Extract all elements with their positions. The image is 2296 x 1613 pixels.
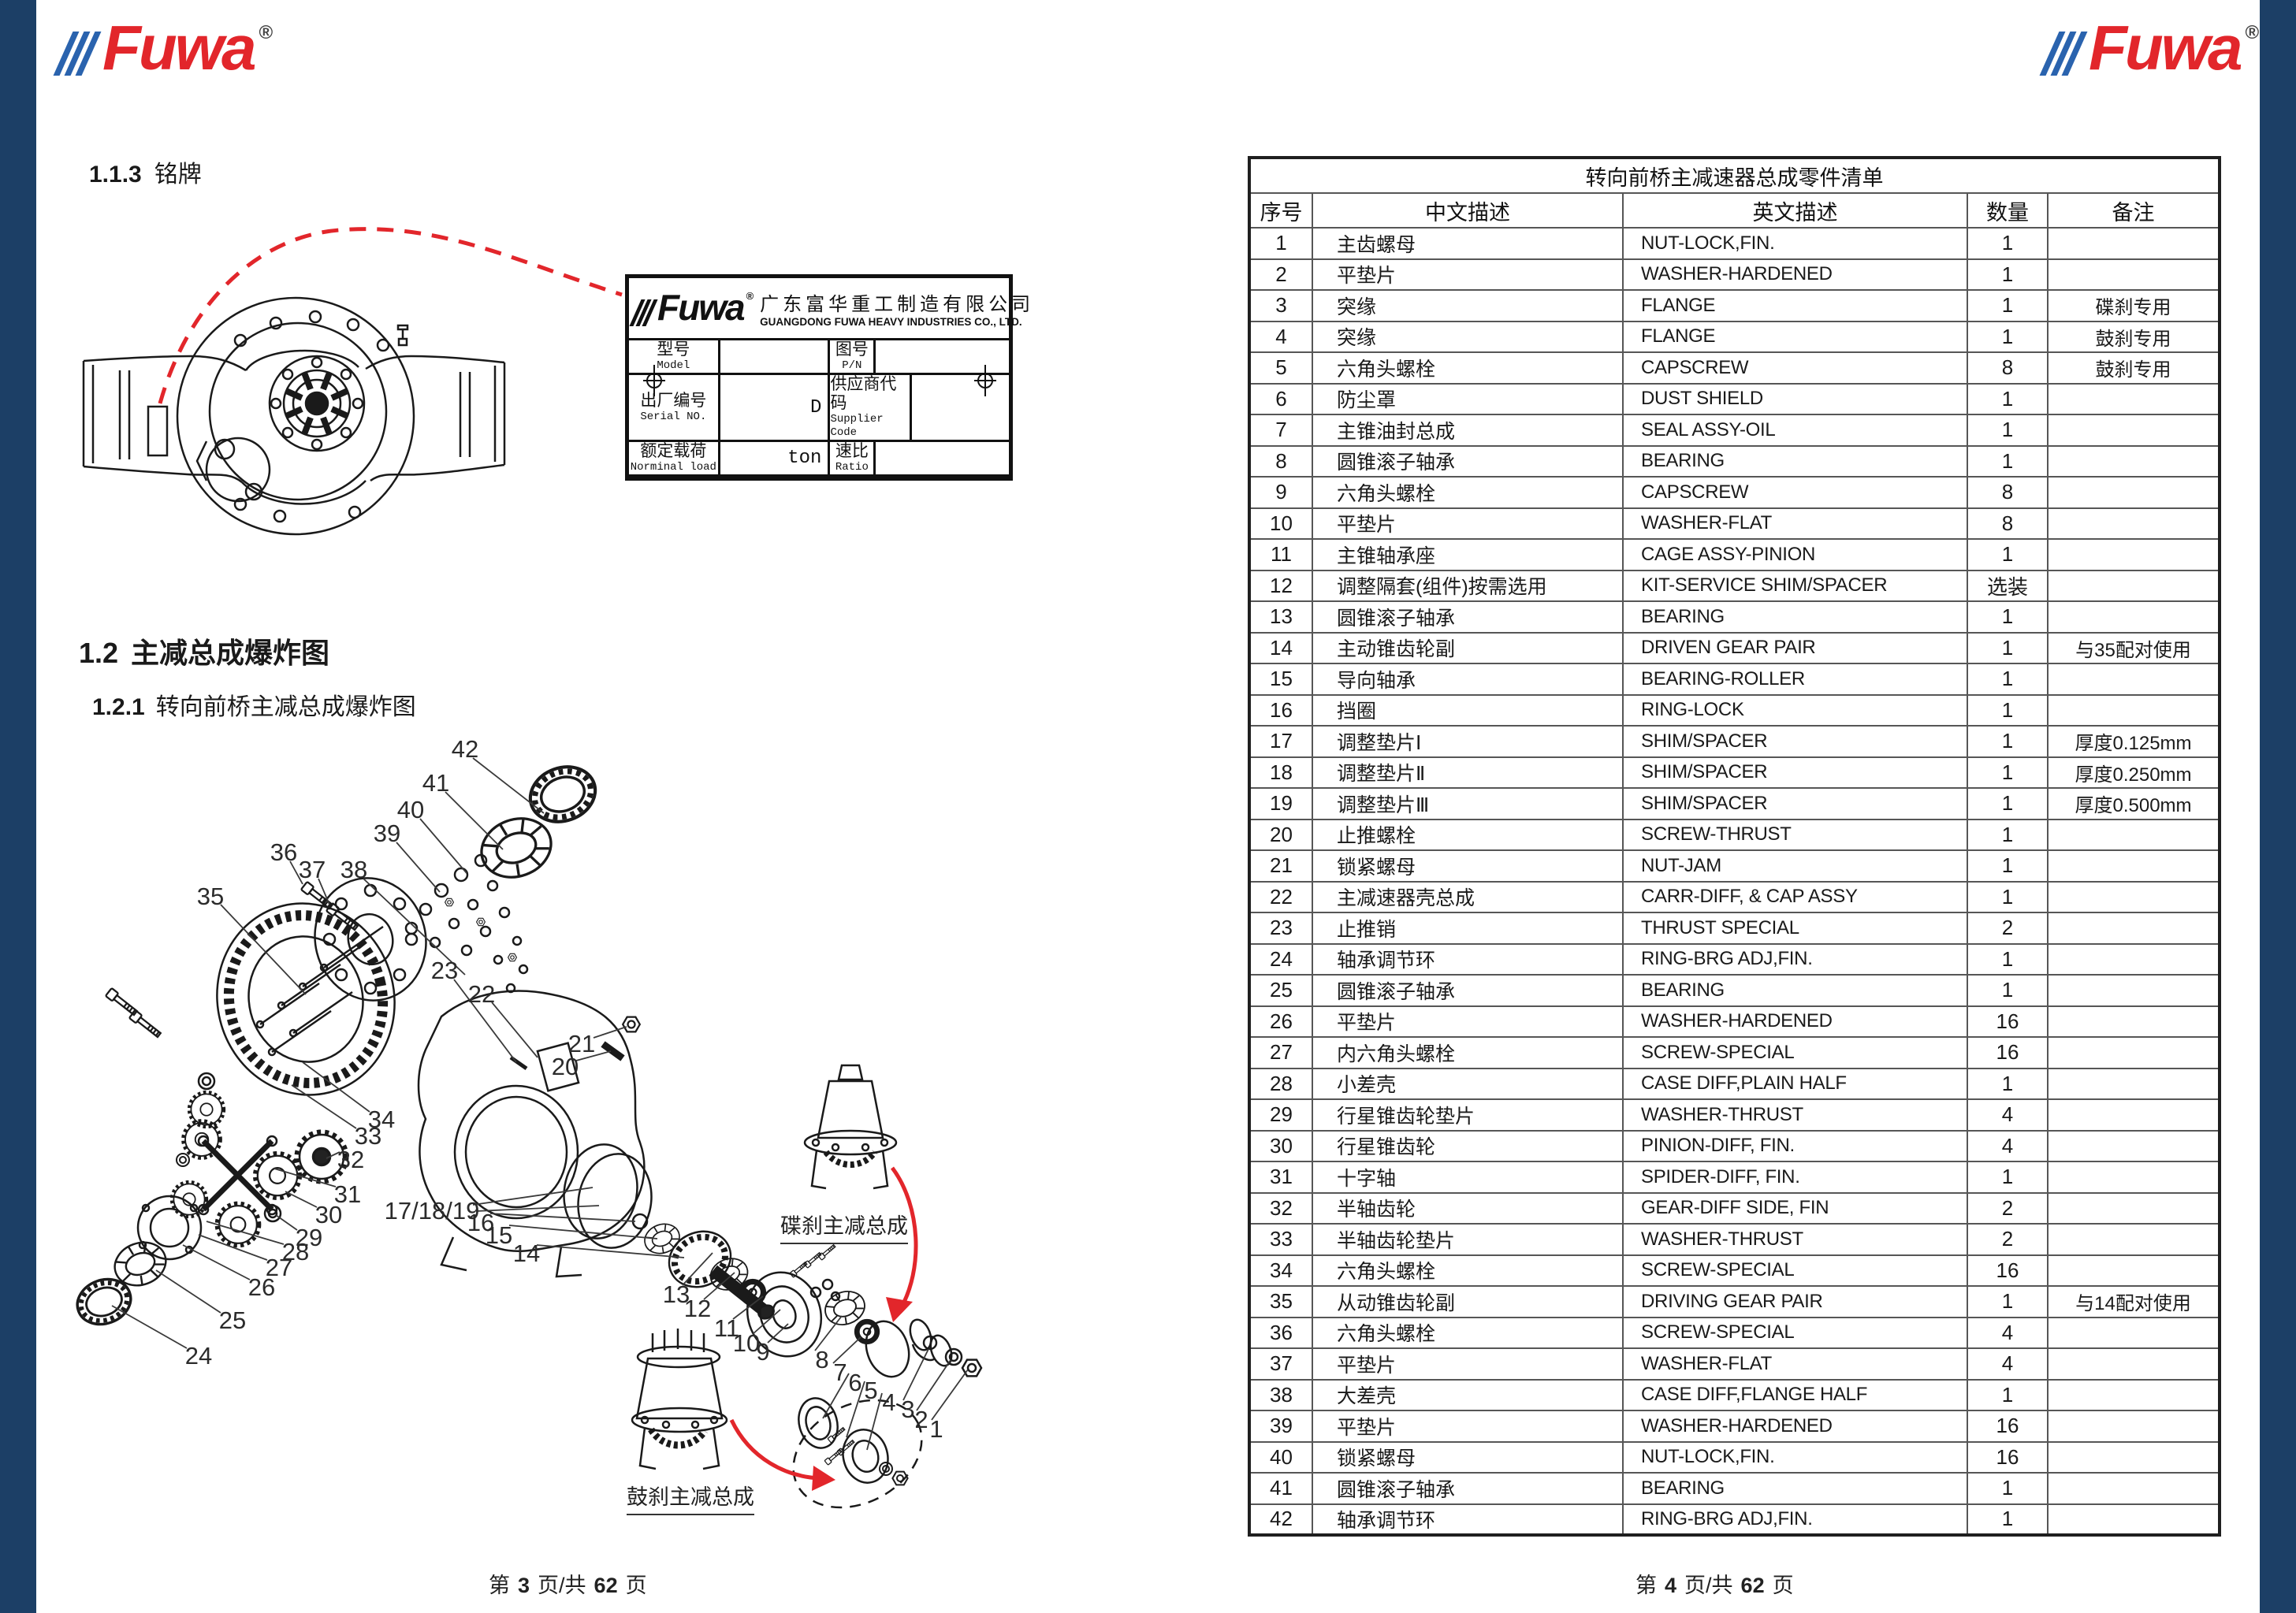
cell-remark — [2048, 1069, 2220, 1100]
table-row: 7主锥油封总成SEAL ASSY-OIL1 — [1249, 414, 2220, 446]
cell-no: 15 — [1249, 663, 1312, 695]
callout-disc-brake-assy: 碟刹主减总成 — [780, 1209, 908, 1244]
cell-desc-en: FLANGE — [1623, 321, 1967, 353]
table-row: 30行星锥齿轮PINION-DIFF, FIN.4 — [1249, 1131, 2220, 1162]
part-label: 9 — [756, 1338, 769, 1366]
cell-remark — [2048, 446, 2220, 478]
page-footer-right: 第4页/共62页 — [1635, 1568, 1794, 1599]
cell-desc-cn: 调整隔套(组件)按需选用 — [1312, 570, 1623, 602]
cell-qty: 1 — [1967, 726, 2048, 757]
cell-desc-en: CASE DIFF,FLANGE HALF — [1623, 1380, 1967, 1411]
plate-value-ratio — [876, 442, 1009, 474]
cell-qty: 1 — [1967, 259, 2048, 291]
cell-qty: 1 — [1967, 1473, 2048, 1504]
cell-qty: 1 — [1967, 414, 2048, 446]
cell-remark: 厚度0.500mm — [2048, 788, 2220, 820]
cell-desc-cn: 从动锥齿轮副 — [1312, 1286, 1623, 1318]
plate-label-ratio: 速比 Ratio — [830, 442, 876, 474]
table-row: 24轴承调节环RING-BRG ADJ,FIN.1 — [1249, 944, 2220, 976]
cell-qty: 8 — [1967, 352, 2048, 384]
cell-qty: 1 — [1967, 446, 2048, 478]
cell-no: 22 — [1249, 882, 1312, 913]
table-row: 13圆锥滚子轴承BEARING1 — [1249, 601, 2220, 633]
cell-remark — [2048, 601, 2220, 633]
breather-fitting — [398, 325, 407, 345]
part-label: 7 — [833, 1358, 847, 1386]
cell-no: 25 — [1249, 975, 1312, 1006]
cell-remark — [2048, 1473, 2220, 1504]
cell-remark — [2048, 1255, 2220, 1287]
table-row: 5六角头螺栓CAPSCREW8鼓刹专用 — [1249, 352, 2220, 384]
page-number: 3 — [518, 1574, 530, 1597]
cell-no: 12 — [1249, 570, 1312, 602]
section-title: 主减总成爆炸图 — [131, 637, 329, 669]
cell-desc-en: WASHER-HARDENED — [1623, 259, 1967, 291]
cell-no: 36 — [1249, 1318, 1312, 1349]
cell-qty: 2 — [1967, 912, 2048, 944]
cell-desc-cn: 调整垫片Ⅱ — [1312, 757, 1623, 789]
table-title: 转向前桥主减速器总成零件清单 — [1249, 158, 2220, 193]
cell-no: 38 — [1249, 1380, 1312, 1411]
cell-remark: 厚度0.125mm — [2048, 726, 2220, 757]
cell-qty: 1 — [1967, 290, 2048, 321]
part-label: 41 — [422, 769, 449, 797]
nameplate-location-marker — [148, 407, 167, 455]
cell-desc-cn: 突缘 — [1312, 290, 1623, 321]
part-label: 35 — [197, 883, 224, 910]
cell-remark — [2048, 912, 2220, 944]
mounting-hole-icon — [968, 363, 1003, 398]
cell-remark — [2048, 1037, 2220, 1069]
cell-desc-cn: 平垫片 — [1312, 259, 1623, 291]
table-row: 27内六角头螺栓SCREW-SPECIAL16 — [1249, 1037, 2220, 1069]
table-row: 6防尘罩DUST SHIELD1 — [1249, 384, 2220, 415]
cell-qty: 1 — [1967, 788, 2048, 820]
part-label: 20 — [552, 1053, 579, 1080]
cell-desc-cn: 大差壳 — [1312, 1380, 1623, 1411]
cell-desc-en: WASHER-HARDENED — [1623, 1410, 1967, 1442]
axle-hub — [270, 356, 364, 451]
nameplate-leader-dashed — [160, 229, 622, 403]
cell-qty: 1 — [1967, 228, 2048, 259]
cell-remark — [2048, 414, 2220, 446]
yoke-washer-nut — [906, 1317, 981, 1376]
cell-desc-cn: 圆锥滚子轴承 — [1312, 975, 1623, 1006]
table-row: 14主动锥齿轮副DRIVEN GEAR PAIR1与35配对使用 — [1249, 633, 2220, 664]
part-label: 39 — [374, 820, 400, 847]
cell-desc-cn: 主齿螺母 — [1312, 228, 1623, 259]
table-row: 2平垫片WASHER-HARDENED1 — [1249, 259, 2220, 291]
part-label: 17/18/19 — [385, 1197, 480, 1225]
jam-nut-21 — [623, 1017, 640, 1032]
cell-no: 26 — [1249, 1006, 1312, 1038]
cell-desc-en: WASHER-HARDENED — [1623, 1006, 1967, 1038]
cell-desc-cn: 圆锥滚子轴承 — [1312, 601, 1623, 633]
cell-no: 34 — [1249, 1255, 1312, 1287]
fuwa-logo-top-right: Fuwa ® — [2049, 20, 2259, 76]
page-footer-left: 第3页/共62页 — [489, 1568, 647, 1599]
table-row: 26平垫片WASHER-HARDENED16 — [1249, 1006, 2220, 1038]
cell-desc-cn: 突缘 — [1312, 321, 1623, 353]
cell-no: 2 — [1249, 259, 1312, 291]
cell-no: 39 — [1249, 1410, 1312, 1442]
table-row: 8圆锥滚子轴承BEARING1 — [1249, 446, 2220, 478]
cell-desc-cn: 六角头螺栓 — [1312, 352, 1623, 384]
cell-remark — [2048, 1504, 2220, 1536]
cell-remark: 厚度0.250mm — [2048, 757, 2220, 789]
table-row: 33半轴齿轮垫片WASHER-THRUST2 — [1249, 1224, 2220, 1255]
cell-remark — [2048, 1193, 2220, 1225]
cell-qty: 1 — [1967, 1380, 2048, 1411]
cell-remark — [2048, 1131, 2220, 1162]
cell-desc-en: RING-LOCK — [1623, 695, 1967, 727]
cell-qty: 1 — [1967, 633, 2048, 664]
fuwa-wordmark: Fuwa — [102, 20, 254, 76]
cell-desc-cn: 内六角头螺栓 — [1312, 1037, 1623, 1069]
cell-no: 13 — [1249, 601, 1312, 633]
cell-desc-en: BEARING — [1623, 975, 1967, 1006]
cell-remark — [2048, 663, 2220, 695]
registered-mark-icon: ® — [746, 290, 754, 302]
plate-row-serial: 出厂编号 Serial NO. D 供应商代码 Supplier Code — [629, 375, 1009, 442]
diagram-line-art — [71, 758, 981, 1529]
cell-remark — [2048, 1410, 2220, 1442]
part-label: 1 — [929, 1415, 943, 1443]
cell-desc-en: DRIVING GEAR PAIR — [1623, 1286, 1967, 1318]
cell-desc-cn: 锁紧螺母 — [1312, 850, 1623, 882]
nameplate-header-band: Fuwa ® 广东富华重工制造有限公司 GUANGDONG FUWA HEAVY… — [629, 278, 1009, 340]
cell-remark — [2048, 1161, 2220, 1193]
cell-remark — [2048, 944, 2220, 976]
table-row: 28小差壳CASE DIFF,PLAIN HALF1 — [1249, 1069, 2220, 1100]
table-row: 40锁紧螺母NUT-LOCK,FIN.16 — [1249, 1442, 2220, 1474]
cell-desc-cn: 十字轴 — [1312, 1161, 1623, 1193]
table-row: 20止推螺栓SCREW-THRUST1 — [1249, 820, 2220, 851]
cell-desc-cn: 六角头螺栓 — [1312, 1255, 1623, 1287]
cell-desc-en: KIT-SERVICE SHIM/SPACER — [1623, 570, 1967, 602]
cell-qty: 1 — [1967, 321, 2048, 353]
part-label: 14 — [513, 1239, 540, 1267]
page-total: 62 — [594, 1574, 618, 1597]
table-row: 19调整垫片ⅢSHIM/SPACER1厚度0.500mm — [1249, 788, 2220, 820]
carrier-housing — [419, 991, 644, 1277]
table-row: 39平垫片WASHER-HARDENED16 — [1249, 1410, 2220, 1442]
cell-remark — [2048, 1224, 2220, 1255]
cell-no: 28 — [1249, 1069, 1312, 1100]
cell-remark — [2048, 570, 2220, 602]
cell-remark: 与14配对使用 — [2048, 1286, 2220, 1318]
cell-desc-cn: 防尘罩 — [1312, 384, 1623, 415]
cell-desc-en: THRUST SPECIAL — [1623, 912, 1967, 944]
cell-no: 5 — [1249, 352, 1312, 384]
part-label: 37 — [299, 856, 326, 883]
cell-desc-en: SHIM/SPACER — [1623, 726, 1967, 757]
header-remark: 备注 — [2048, 193, 2220, 228]
nameplate-fuwa-logo: Fuwa ® — [635, 290, 754, 326]
table-row: 10平垫片WASHER-FLAT8 — [1249, 508, 2220, 540]
cell-remark — [2048, 384, 2220, 415]
cell-desc-en: CARR-DIFF, & CAP ASSY — [1623, 882, 1967, 913]
cell-qty: 1 — [1967, 663, 2048, 695]
left-navy-bar — [0, 0, 36, 1613]
page-total: 62 — [1741, 1574, 1765, 1597]
cell-remark — [2048, 850, 2220, 882]
part-label: 12 — [684, 1295, 711, 1322]
table-row: 16挡圈RING-LOCK1 — [1249, 695, 2220, 727]
part-label: 15 — [486, 1221, 512, 1249]
cell-qty: 1 — [1967, 850, 2048, 882]
cell-desc-cn: 主锥轴承座 — [1312, 539, 1623, 570]
cell-remark — [2048, 477, 2220, 508]
cell-remark — [2048, 259, 2220, 291]
table-row: 38大差壳CASE DIFF,FLANGE HALF1 — [1249, 1380, 2220, 1411]
cell-no: 41 — [1249, 1473, 1312, 1504]
cell-desc-en: CAPSCREW — [1623, 352, 1967, 384]
cell-desc-en: WASHER-FLAT — [1623, 508, 1967, 540]
cell-desc-en: WASHER-FLAT — [1623, 1348, 1967, 1380]
cell-desc-cn: 止推螺栓 — [1312, 820, 1623, 851]
plate-value-serial: D — [720, 375, 831, 440]
cell-desc-en: RING-BRG ADJ,FIN. — [1623, 1504, 1967, 1536]
cell-no: 42 — [1249, 1504, 1312, 1536]
cell-no: 6 — [1249, 384, 1312, 415]
cell-qty: 4 — [1967, 1099, 2048, 1131]
diff-case-group — [138, 1182, 207, 1259]
cell-desc-en: DUST SHIELD — [1623, 384, 1967, 415]
cell-qty: 1 — [1967, 601, 2048, 633]
cell-qty: 16 — [1967, 1006, 2048, 1038]
cell-desc-en: CASE DIFF,PLAIN HALF — [1623, 1069, 1967, 1100]
cell-desc-en: NUT-LOCK,FIN. — [1623, 1442, 1967, 1474]
cell-desc-cn: 调整垫片Ⅲ — [1312, 788, 1623, 820]
plate-label-load: 额定载荷 Norminal load — [629, 442, 720, 474]
fuwa-wordmark: Fuwa — [657, 290, 744, 325]
table-row: 18调整垫片ⅡSHIM/SPACER1厚度0.250mm — [1249, 757, 2220, 789]
cell-desc-cn: 圆锥滚子轴承 — [1312, 1473, 1623, 1504]
drum-assy-inset — [632, 1329, 727, 1469]
cell-no: 31 — [1249, 1161, 1312, 1193]
cell-qty: 1 — [1967, 1161, 2048, 1193]
company-name-cn: 广东富华重工制造有限公司 — [760, 288, 1034, 316]
cell-desc-en: GEAR-DIFF SIDE, FIN — [1623, 1193, 1967, 1225]
cell-no: 40 — [1249, 1442, 1312, 1474]
plate-label-pn: 图号 P/N — [830, 340, 876, 373]
cell-remark — [2048, 1380, 2220, 1411]
cell-desc-en: WASHER-THRUST — [1623, 1099, 1967, 1131]
cell-qty: 1 — [1967, 1504, 2048, 1536]
plate-value-model — [720, 340, 831, 373]
cell-remark: 鼓刹专用 — [2048, 352, 2220, 384]
table-row: 34六角头螺栓SCREW-SPECIAL16 — [1249, 1255, 2220, 1287]
cell-desc-en: BEARING — [1623, 601, 1967, 633]
cell-desc-cn: 调整垫片Ⅰ — [1312, 726, 1623, 757]
table-row: 12调整隔套(组件)按需选用KIT-SERVICE SHIM/SPACER选装 — [1249, 570, 2220, 602]
plate-row-model: 型号 Model 图号 P/N — [629, 340, 1009, 375]
header-qty: 数量 — [1967, 193, 2048, 228]
cell-no: 21 — [1249, 850, 1312, 882]
section-number: 1.1.3 — [89, 162, 142, 188]
cell-desc-en: WASHER-THRUST — [1623, 1224, 1967, 1255]
cell-desc-cn: 挡圈 — [1312, 695, 1623, 727]
section-title: 铭牌 — [154, 162, 202, 188]
cell-qty: 1 — [1967, 384, 2048, 415]
fuwa-wordmark: Fuwa — [2089, 20, 2240, 76]
cell-qty: 16 — [1967, 1255, 2048, 1287]
cell-qty: 4 — [1967, 1348, 2048, 1380]
table-row: 31十字轴SPIDER-DIFF, FIN.1 — [1249, 1161, 2220, 1193]
cell-qty: 1 — [1967, 539, 2048, 570]
cell-desc-cn: 行星锥齿轮 — [1312, 1131, 1623, 1162]
plate-label-supplier-code: 供应商代码 Supplier Code — [830, 375, 912, 440]
part-label: 3 — [901, 1396, 914, 1423]
cell-qty: 1 — [1967, 975, 2048, 1006]
header-desc-en: 英文描述 — [1623, 193, 1967, 228]
axle-housing — [84, 298, 504, 534]
cell-qty: 2 — [1967, 1224, 2048, 1255]
cell-desc-cn: 六角头螺栓 — [1312, 1318, 1623, 1349]
cell-remark — [2048, 1006, 2220, 1038]
cell-desc-cn: 主减速器壳总成 — [1312, 882, 1623, 913]
header-desc-cn: 中文描述 — [1312, 193, 1623, 228]
cell-remark: 鼓刹专用 — [2048, 321, 2220, 353]
table-row: 4突缘FLANGE1鼓刹专用 — [1249, 321, 2220, 353]
part-label: 26 — [248, 1273, 275, 1301]
cell-qty: 1 — [1967, 695, 2048, 727]
part-label: 24 — [185, 1342, 212, 1370]
cell-desc-cn: 六角头螺栓 — [1312, 477, 1623, 508]
table-row: 11主锥轴承座CAGE ASSY-PINION1 — [1249, 539, 2220, 570]
cell-no: 1 — [1249, 228, 1312, 259]
section-heading-1-2: 1.2主减总成爆炸图 — [79, 630, 329, 671]
cell-remark: 碟刹专用 — [2048, 290, 2220, 321]
cell-desc-cn: 平垫片 — [1312, 1006, 1623, 1038]
section-number: 1.2 — [79, 637, 118, 669]
table-row: 29行星锥齿轮垫片WASHER-THRUST4 — [1249, 1099, 2220, 1131]
disc-assy-inset — [805, 1065, 896, 1188]
cell-desc-cn: 半轴齿轮垫片 — [1312, 1224, 1623, 1255]
cell-qty: 1 — [1967, 1069, 2048, 1100]
cell-remark — [2048, 508, 2220, 540]
table-row: 35从动锥齿轮副DRIVING GEAR PAIR1与14配对使用 — [1249, 1286, 2220, 1318]
cell-desc-en: SHIM/SPACER — [1623, 788, 1967, 820]
part-label: 6 — [848, 1369, 861, 1396]
adjust-ring-24 — [71, 1272, 137, 1331]
fuwa-stripes-icon — [2049, 32, 2082, 76]
table-row: 15导向轴承BEARING-ROLLER1 — [1249, 663, 2220, 695]
cell-no: 11 — [1249, 539, 1312, 570]
cell-desc-en: NUT-JAM — [1623, 850, 1967, 882]
cell-desc-cn: 主动锥齿轮副 — [1312, 633, 1623, 664]
cell-desc-en: CAGE ASSY-PINION — [1623, 539, 1967, 570]
cell-qty: 4 — [1967, 1318, 2048, 1349]
nameplate: Fuwa ® 广东富华重工制造有限公司 GUANGDONG FUWA HEAVY… — [625, 274, 1013, 481]
cell-desc-en: DRIVEN GEAR PAIR — [1623, 633, 1967, 664]
header-no: 序号 — [1249, 193, 1312, 228]
cell-remark — [2048, 1348, 2220, 1380]
table-header-row: 序号 中文描述 英文描述 数量 备注 — [1249, 193, 2220, 228]
cell-remark — [2048, 1099, 2220, 1131]
cell-no: 14 — [1249, 633, 1312, 664]
plate-row-load: 额定载荷 Norminal load ton 速比 Ratio — [629, 442, 1009, 477]
cell-qty: 1 — [1967, 757, 2048, 789]
cell-desc-en: BEARING — [1623, 446, 1967, 478]
page-number: 4 — [1665, 1574, 1676, 1597]
part-label: 23 — [431, 957, 458, 984]
cell-no: 3 — [1249, 290, 1312, 321]
cell-desc-en: FLANGE — [1623, 290, 1967, 321]
part-label: 22 — [468, 980, 495, 1008]
section-heading-1-1-3: 1.1.3铭牌 — [89, 154, 202, 189]
cell-desc-en: SCREW-SPECIAL — [1623, 1037, 1967, 1069]
cell-qty: 8 — [1967, 508, 2048, 540]
cell-no: 37 — [1249, 1348, 1312, 1380]
cell-no: 7 — [1249, 414, 1312, 446]
callout-drum-brake-assy: 鼓刹主减总成 — [627, 1480, 754, 1515]
cell-remark — [2048, 1442, 2220, 1474]
cell-desc-cn: 锁紧螺母 — [1312, 1442, 1623, 1474]
cell-desc-cn: 平垫片 — [1312, 508, 1623, 540]
table-row: 36六角头螺栓SCREW-SPECIAL4 — [1249, 1318, 2220, 1349]
cell-qty: 16 — [1967, 1037, 2048, 1069]
table-row: 1主齿螺母NUT-LOCK,FIN.1 — [1249, 228, 2220, 259]
section-heading-1-2-1: 1.2.1转向前桥主减总成爆炸图 — [92, 687, 416, 722]
cell-no: 16 — [1249, 695, 1312, 727]
part-label: 36 — [270, 838, 297, 866]
axle-line-drawing — [71, 211, 638, 566]
cell-remark — [2048, 695, 2220, 727]
cell-remark — [2048, 820, 2220, 851]
mounting-hole-icon — [637, 363, 672, 398]
cell-desc-cn: 止推销 — [1312, 912, 1623, 944]
cell-desc-cn: 轴承调节环 — [1312, 944, 1623, 976]
cell-desc-en: RING-BRG ADJ,FIN. — [1623, 944, 1967, 976]
fuwa-logo-top-left: Fuwa ® — [63, 20, 273, 76]
cell-desc-en: SPIDER-DIFF, FIN. — [1623, 1161, 1967, 1193]
cell-no: 19 — [1249, 788, 1312, 820]
cell-no: 20 — [1249, 820, 1312, 851]
company-name-en: GUANGDONG FUWA HEAVY INDUSTRIES CO., LTD… — [760, 316, 1034, 328]
cell-no: 9 — [1249, 477, 1312, 508]
part-label: 40 — [397, 796, 424, 823]
cell-remark — [2048, 882, 2220, 913]
table-row: 37平垫片WASHER-FLAT4 — [1249, 1348, 2220, 1380]
part-label: 38 — [340, 856, 367, 883]
table-row: 17调整垫片ⅠSHIM/SPACER1厚度0.125mm — [1249, 726, 2220, 757]
table-row: 32半轴齿轮GEAR-DIFF SIDE, FIN2 — [1249, 1193, 2220, 1225]
cell-remark: 与35配对使用 — [2048, 633, 2220, 664]
cell-desc-en: SCREW-THRUST — [1623, 820, 1967, 851]
cell-desc-en: SEAL ASSY-OIL — [1623, 414, 1967, 446]
cell-desc-cn: 主锥油封总成 — [1312, 414, 1623, 446]
table-row: 21锁紧螺母NUT-JAM1 — [1249, 850, 2220, 882]
cell-qty: 1 — [1967, 944, 2048, 976]
cell-no: 23 — [1249, 912, 1312, 944]
cell-qty: 16 — [1967, 1442, 2048, 1474]
cell-no: 10 — [1249, 508, 1312, 540]
part-label: 5 — [864, 1377, 877, 1404]
part-label: 8 — [815, 1346, 828, 1373]
part-label: 4 — [882, 1388, 895, 1416]
table-row: 3突缘FLANGE1碟刹专用 — [1249, 290, 2220, 321]
part-label: 25 — [219, 1306, 246, 1334]
cell-no: 24 — [1249, 944, 1312, 976]
cell-qty: 1 — [1967, 820, 2048, 851]
ring-gear — [197, 866, 439, 1113]
manual-spread: { "brand": {"name": "Fuwa", "reg": "®"},… — [0, 0, 2296, 1613]
cell-remark — [2048, 1318, 2220, 1349]
cell-desc-cn: 行星锥齿轮垫片 — [1312, 1099, 1623, 1131]
cell-desc-en: SCREW-SPECIAL — [1623, 1255, 1967, 1287]
